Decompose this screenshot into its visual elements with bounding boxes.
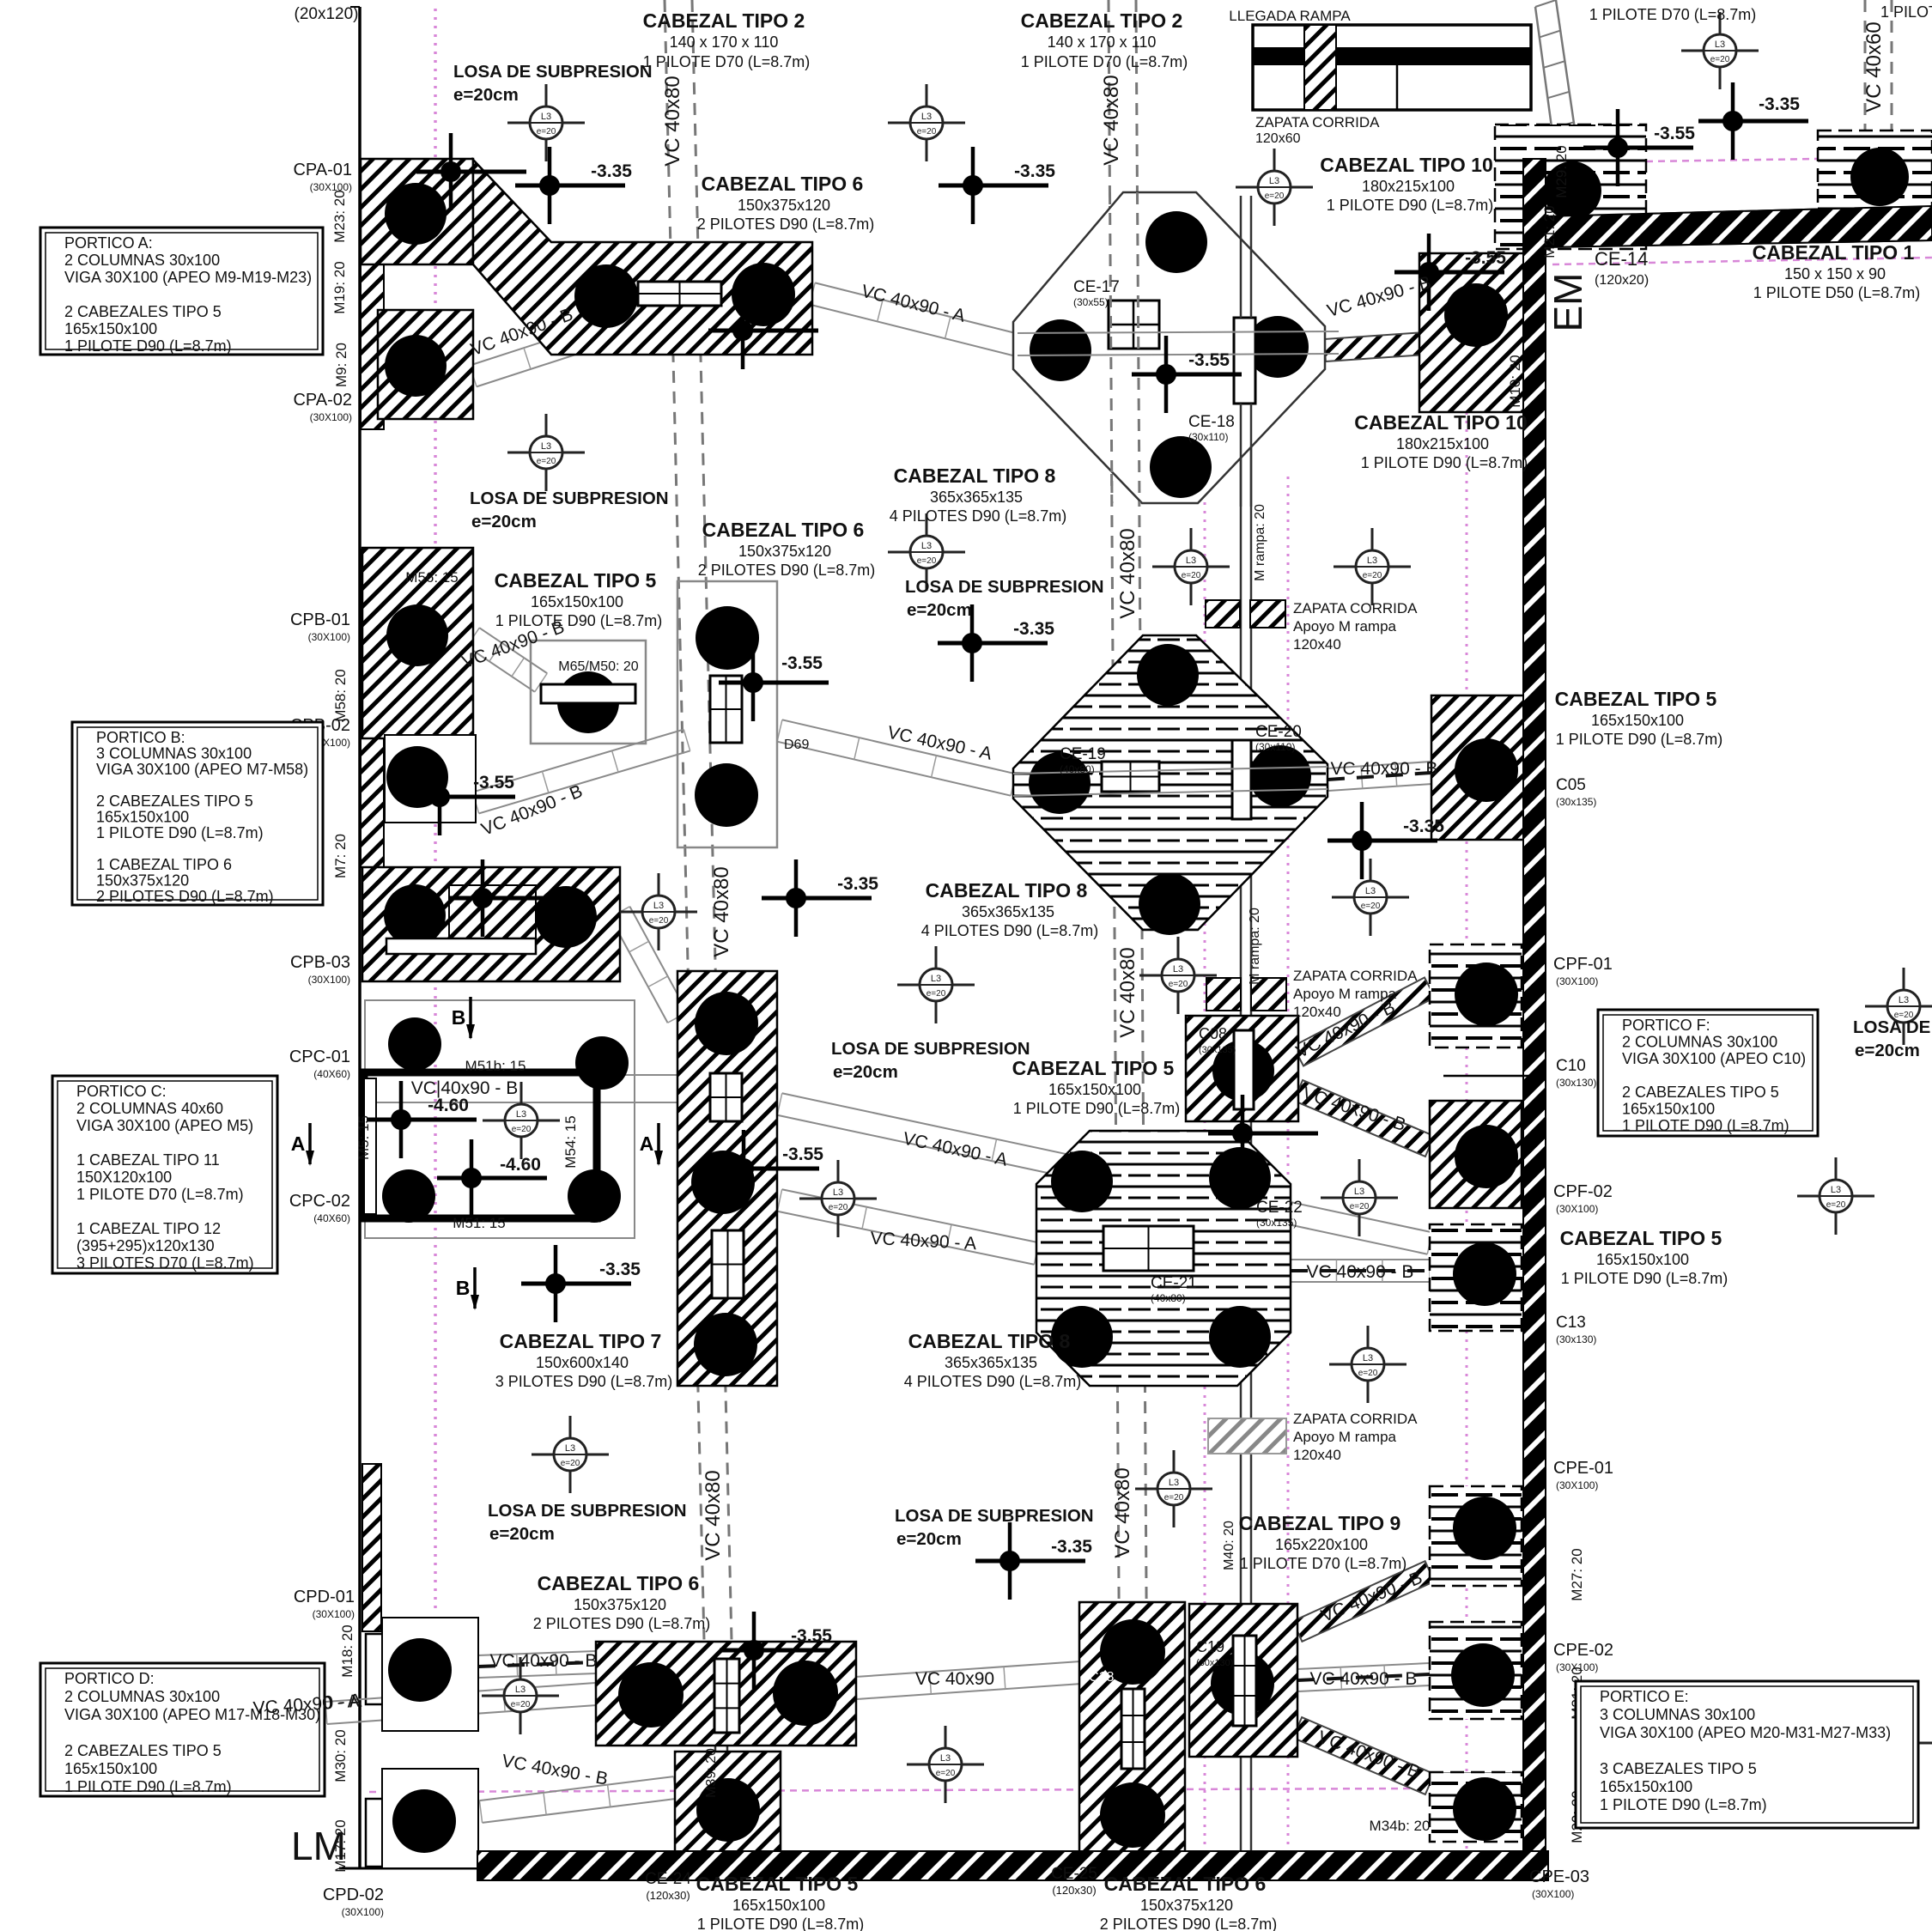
svg-text:L3: L3 bbox=[1269, 176, 1279, 186]
svg-text:VC 40x90 - B: VC 40x90 - B bbox=[490, 1651, 598, 1671]
svg-text:1 PILOTE D90 (L=8.7m): 1 PILOTE D90 (L=8.7m) bbox=[1600, 1796, 1767, 1813]
svg-text:(30x130): (30x130) bbox=[1196, 1658, 1233, 1668]
svg-text:C05: C05 bbox=[1556, 776, 1586, 794]
svg-text:(30X100): (30X100) bbox=[1556, 1479, 1598, 1491]
svg-text:(120x30): (120x30) bbox=[646, 1889, 690, 1902]
svg-text:140 x 170 x 110: 140 x 170 x 110 bbox=[670, 33, 779, 51]
svg-text:ZAPATA CORRIDA: ZAPATA CORRIDA bbox=[1293, 1411, 1418, 1427]
svg-text:L3: L3 bbox=[565, 1443, 575, 1454]
svg-text:e=20: e=20 bbox=[917, 556, 937, 566]
svg-text:1 PILOTE D90 (L=8.7m): 1 PILOTE D90 (L=8.7m) bbox=[1013, 1100, 1181, 1117]
svg-text:165x150x100: 165x150x100 bbox=[64, 1760, 157, 1777]
svg-text:(30x110): (30x110) bbox=[1255, 741, 1295, 753]
svg-text:1 CABEZAL TIPO 11: 1 CABEZAL TIPO 11 bbox=[76, 1151, 220, 1169]
svg-text:e=20: e=20 bbox=[829, 1203, 848, 1212]
svg-text:ZAPATA CORRIDA: ZAPATA CORRIDA bbox=[1293, 600, 1418, 616]
svg-text:Apoyo M rampa: Apoyo M rampa bbox=[1293, 618, 1397, 635]
svg-text:L3: L3 bbox=[1354, 1187, 1364, 1197]
svg-text:2 CABEZALES TIPO 5: 2 CABEZALES TIPO 5 bbox=[64, 303, 222, 320]
svg-text:2 COLUMNAS 30x100: 2 COLUMNAS 30x100 bbox=[64, 1688, 220, 1705]
svg-text:2 COLUMNAS 40x60: 2 COLUMNAS 40x60 bbox=[76, 1100, 223, 1117]
svg-text:C13: C13 bbox=[1556, 1314, 1586, 1332]
svg-text:B: B bbox=[456, 1277, 471, 1299]
svg-text:M30: 20: M30: 20 bbox=[332, 1729, 349, 1782]
svg-text:CPB-01: CPB-01 bbox=[290, 610, 350, 629]
svg-text:(30X100): (30X100) bbox=[1532, 1888, 1574, 1900]
svg-text:2 COLUMNAS 30x100: 2 COLUMNAS 30x100 bbox=[1622, 1034, 1777, 1051]
svg-text:CE-25: CE-25 bbox=[1051, 1865, 1097, 1883]
svg-text:CE-18: CE-18 bbox=[1188, 413, 1235, 431]
svg-text:CE-17: CE-17 bbox=[1073, 278, 1120, 296]
svg-text:150x375x120: 150x375x120 bbox=[96, 872, 189, 890]
svg-text:e=20cm: e=20cm bbox=[896, 1529, 962, 1549]
svg-text:1 PILOTE D90 (L=8.7m): 1 PILOTE D90 (L=8.7m) bbox=[697, 1916, 865, 1931]
svg-text:CE-24: CE-24 bbox=[645, 1870, 691, 1888]
svg-text:VC 40x60: VC 40x60 bbox=[1862, 21, 1886, 112]
svg-text:CPD-02: CPD-02 bbox=[323, 1885, 384, 1904]
svg-text:1 PILOTE D70 (L=8.7m): 1 PILOTE D70 (L=8.7m) bbox=[76, 1186, 244, 1203]
svg-text:-3.35: -3.35 bbox=[599, 1260, 641, 1279]
svg-text:1 PILOTE D70 (L=8.7m): 1 PILOTE D70 (L=8.7m) bbox=[1021, 53, 1188, 70]
svg-text:365x365x135: 365x365x135 bbox=[945, 1354, 1037, 1371]
svg-text:M40: 20: M40: 20 bbox=[1222, 1521, 1236, 1570]
svg-text:CABEZAL TIPO 5: CABEZAL TIPO 5 bbox=[1555, 688, 1717, 710]
svg-text:(30x135): (30x135) bbox=[1556, 796, 1596, 808]
svg-text:CPC-01: CPC-01 bbox=[289, 1047, 350, 1066]
svg-text:e=20cm: e=20cm bbox=[489, 1524, 555, 1544]
svg-text:1 CABEZAL TIPO 12: 1 CABEZAL TIPO 12 bbox=[76, 1220, 221, 1237]
svg-text:150 x 150 x 90: 150 x 150 x 90 bbox=[1784, 265, 1886, 282]
svg-text:CABEZAL TIPO 5: CABEZAL TIPO 5 bbox=[1560, 1227, 1722, 1249]
svg-text:140 x 170 x 110: 140 x 170 x 110 bbox=[1048, 33, 1157, 51]
svg-text:e=20: e=20 bbox=[1265, 191, 1285, 201]
svg-text:A: A bbox=[291, 1132, 306, 1155]
svg-text:(120x20): (120x20) bbox=[1595, 273, 1649, 288]
svg-text:CPF-01: CPF-01 bbox=[1553, 955, 1613, 974]
svg-text:L3: L3 bbox=[1715, 39, 1725, 50]
svg-text:e=20cm: e=20cm bbox=[453, 85, 519, 105]
svg-text:e=20: e=20 bbox=[537, 457, 556, 466]
svg-text:M18: 20: M18: 20 bbox=[339, 1624, 355, 1677]
svg-text:PORTICO C:: PORTICO C: bbox=[76, 1083, 167, 1100]
svg-text:ZAPATA CORRIDA: ZAPATA CORRIDA bbox=[1255, 114, 1380, 131]
svg-text:180x215x100: 180x215x100 bbox=[1362, 178, 1455, 195]
svg-text:1 PILOTE D70 (L=8.7m): 1 PILOTE D70 (L=8.7m) bbox=[1880, 3, 1932, 21]
svg-text:e=20: e=20 bbox=[1350, 1202, 1370, 1211]
svg-text:1 PILOTE D90 (L=8.7m): 1 PILOTE D90 (L=8.7m) bbox=[1327, 197, 1494, 214]
svg-text:L3: L3 bbox=[541, 441, 551, 452]
svg-text:M54: 15: M54: 15 bbox=[562, 1115, 579, 1168]
svg-text:-3.35: -3.35 bbox=[591, 161, 632, 181]
svg-text:L3: L3 bbox=[1367, 556, 1377, 566]
svg-text:L3: L3 bbox=[921, 541, 932, 551]
svg-text:e=20: e=20 bbox=[927, 989, 946, 999]
svg-text:3 PILOTES D70 (L=8.7m): 3 PILOTES D70 (L=8.7m) bbox=[76, 1254, 254, 1272]
svg-text:(30X100): (30X100) bbox=[308, 974, 350, 986]
svg-text:M21: 20: M21: 20 bbox=[1541, 205, 1558, 258]
svg-text:-3.55: -3.55 bbox=[791, 1626, 832, 1646]
svg-text:LOSA DE SUBPRESION: LOSA DE SUBPRESION bbox=[488, 1501, 687, 1521]
svg-text:3 CABEZALES TIPO 5: 3 CABEZALES TIPO 5 bbox=[1600, 1760, 1757, 1777]
svg-text:365x365x135: 365x365x135 bbox=[930, 489, 1023, 506]
svg-text:(30x110): (30x110) bbox=[1188, 431, 1228, 443]
svg-text:2 CABEZALES TIPO 5: 2 CABEZALES TIPO 5 bbox=[64, 1742, 222, 1759]
svg-text:CABEZAL TIPO 8: CABEZAL TIPO 8 bbox=[894, 465, 1056, 487]
svg-text:e=20: e=20 bbox=[649, 916, 669, 926]
svg-text:e=20: e=20 bbox=[511, 1700, 531, 1709]
svg-text:M65/M50: 20: M65/M50: 20 bbox=[558, 659, 638, 674]
svg-text:VIGA 30X100 (APEO M9-M19-M23): VIGA 30X100 (APEO M9-M19-M23) bbox=[64, 269, 312, 286]
svg-text:CABEZAL TIPO 5: CABEZAL TIPO 5 bbox=[1012, 1057, 1175, 1079]
svg-text:VC 40x90 - B: VC 40x90 - B bbox=[1310, 1669, 1418, 1689]
svg-text:PORTICO F:: PORTICO F: bbox=[1622, 1017, 1710, 1034]
svg-text:1 PILOTE D90 (L=8.7m): 1 PILOTE D90 (L=8.7m) bbox=[64, 1778, 232, 1795]
svg-text:L3: L3 bbox=[1186, 556, 1196, 566]
svg-text:L3: L3 bbox=[515, 1685, 526, 1695]
svg-text:-3.35: -3.35 bbox=[1014, 161, 1055, 181]
svg-text:1 PILOTE D90 (L=8.7m): 1 PILOTE D90 (L=8.7m) bbox=[1622, 1117, 1789, 1134]
svg-text:EM: EM bbox=[1546, 273, 1590, 332]
svg-text:165x150x100: 165x150x100 bbox=[732, 1897, 825, 1914]
svg-text:120x40: 120x40 bbox=[1293, 636, 1341, 653]
svg-text:ZAPATA CORRIDA: ZAPATA CORRIDA bbox=[1293, 968, 1418, 984]
svg-text:M34b: 20: M34b: 20 bbox=[1370, 1818, 1431, 1834]
svg-text:CPE-02: CPE-02 bbox=[1553, 1641, 1613, 1660]
svg-text:CABEZAL TIPO 2: CABEZAL TIPO 2 bbox=[1021, 9, 1183, 32]
svg-text:M5: 15: M5: 15 bbox=[355, 1115, 372, 1160]
svg-text:(30x55): (30x55) bbox=[1073, 296, 1109, 308]
svg-text:e=20: e=20 bbox=[1358, 1369, 1378, 1378]
svg-text:Apoyo M rampa: Apoyo M rampa bbox=[1293, 1429, 1397, 1445]
svg-text:180x215x100: 180x215x100 bbox=[1396, 435, 1489, 452]
svg-text:CABEZAL TIPO 5: CABEZAL TIPO 5 bbox=[696, 1873, 859, 1895]
svg-text:e=20cm: e=20cm bbox=[471, 512, 537, 531]
svg-text:165x150x100: 165x150x100 bbox=[1596, 1251, 1689, 1268]
svg-text:e=20: e=20 bbox=[917, 127, 937, 137]
svg-text:120x40: 120x40 bbox=[1293, 1447, 1341, 1463]
svg-text:M19: 20: M19: 20 bbox=[331, 261, 348, 313]
svg-text:e=20: e=20 bbox=[1169, 980, 1188, 989]
svg-text:LOSA DE SUBPRESION: LOSA DE SUBPRESION bbox=[1853, 1017, 1932, 1037]
svg-text:CPE-01: CPE-01 bbox=[1553, 1459, 1613, 1478]
svg-text:4 PILOTES D90 (L=8.7m): 4 PILOTES D90 (L=8.7m) bbox=[904, 1373, 1082, 1390]
svg-text:e=20: e=20 bbox=[537, 127, 556, 137]
svg-text:M17: 20: M17: 20 bbox=[332, 1819, 349, 1872]
svg-text:(40x80): (40x80) bbox=[1151, 1292, 1186, 1304]
svg-text:150x375x120: 150x375x120 bbox=[738, 197, 830, 214]
svg-text:(395+295)x120x130: (395+295)x120x130 bbox=[76, 1237, 215, 1254]
svg-text:1 CABEZAL TIPO 6: 1 CABEZAL TIPO 6 bbox=[96, 856, 232, 873]
svg-text:-3.35: -3.35 bbox=[1759, 94, 1800, 114]
svg-text:2 PILOTES D90 (L=8.7m): 2 PILOTES D90 (L=8.7m) bbox=[697, 216, 875, 233]
svg-text:2 PILOTES D90 (L=8.7m): 2 PILOTES D90 (L=8.7m) bbox=[96, 888, 274, 905]
svg-text:CPF-02: CPF-02 bbox=[1553, 1182, 1613, 1201]
svg-text:CE-20: CE-20 bbox=[1255, 723, 1302, 741]
svg-text:(30X100): (30X100) bbox=[310, 411, 352, 423]
svg-text:CABEZAL TIPO 5: CABEZAL TIPO 5 bbox=[495, 569, 657, 592]
svg-text:VC|40x90 - B: VC|40x90 - B bbox=[411, 1078, 519, 1098]
svg-text:2 CABEZALES TIPO 5: 2 CABEZALES TIPO 5 bbox=[96, 792, 253, 810]
svg-text:150x375x120: 150x375x120 bbox=[1140, 1897, 1233, 1914]
svg-text:L3: L3 bbox=[931, 974, 941, 984]
svg-text:CABEZAL TIPO 6: CABEZAL TIPO 6 bbox=[702, 173, 864, 195]
svg-text:165x150x100: 165x150x100 bbox=[96, 809, 189, 826]
svg-text:4 PILOTES D90 (L=8.7m): 4 PILOTES D90 (L=8.7m) bbox=[921, 922, 1099, 939]
svg-text:M39: 20: M39: 20 bbox=[704, 1748, 719, 1798]
svg-text:1 PILOTE D90 (L=8.7m): 1 PILOTE D90 (L=8.7m) bbox=[495, 612, 663, 629]
svg-text:L3: L3 bbox=[940, 1753, 951, 1764]
svg-text:e=20: e=20 bbox=[1710, 55, 1730, 64]
svg-text:-4.60: -4.60 bbox=[500, 1155, 541, 1175]
svg-text:165x220x100: 165x220x100 bbox=[1275, 1536, 1368, 1553]
svg-text:120x40: 120x40 bbox=[1293, 1004, 1341, 1020]
svg-text:CE-21: CE-21 bbox=[1151, 1274, 1197, 1292]
svg-text:LLEGADA RAMPA: LLEGADA RAMPA bbox=[1229, 8, 1351, 24]
svg-text:L3: L3 bbox=[541, 112, 551, 122]
svg-text:e=20: e=20 bbox=[1361, 902, 1381, 911]
svg-text:(30X100): (30X100) bbox=[313, 1608, 355, 1620]
svg-text:VC 40x90: VC 40x90 bbox=[915, 1669, 994, 1689]
svg-text:CE-19: CE-19 bbox=[1060, 745, 1106, 763]
svg-text:120x60: 120x60 bbox=[1255, 131, 1301, 146]
svg-text:1 PILOTE D90 (L=8.7m): 1 PILOTE D90 (L=8.7m) bbox=[1561, 1270, 1728, 1287]
svg-text:e=20cm: e=20cm bbox=[1855, 1041, 1920, 1060]
svg-text:C19: C19 bbox=[1196, 1638, 1224, 1655]
svg-text:LOSA DE SUBPRESION: LOSA DE SUBPRESION bbox=[905, 577, 1104, 597]
svg-text:-3.55: -3.55 bbox=[473, 773, 514, 792]
svg-text:(30x130): (30x130) bbox=[1556, 1077, 1596, 1089]
svg-text:CABEZAL TIPO 8: CABEZAL TIPO 8 bbox=[908, 1330, 1071, 1352]
svg-text:CPA-02: CPA-02 bbox=[293, 391, 352, 410]
svg-text:e=20: e=20 bbox=[1164, 1493, 1184, 1503]
svg-text:L3: L3 bbox=[1169, 1478, 1179, 1488]
svg-text:M10: 20: M10: 20 bbox=[1507, 355, 1523, 407]
svg-text:M23: 20: M23: 20 bbox=[331, 190, 348, 242]
svg-text:L3: L3 bbox=[516, 1109, 526, 1120]
svg-text:CABEZAL TIPO 1: CABEZAL TIPO 1 bbox=[1753, 241, 1915, 264]
svg-text:M27: 20: M27: 20 bbox=[1569, 1548, 1585, 1600]
svg-text:3 COLUMNAS 30x100: 3 COLUMNAS 30x100 bbox=[96, 745, 252, 762]
svg-text:1 PILOTE D90 (L=8.7m): 1 PILOTE D90 (L=8.7m) bbox=[1361, 454, 1528, 471]
svg-text:165x150x100: 165x150x100 bbox=[1591, 712, 1684, 729]
svg-text:PORTICO A:: PORTICO A: bbox=[64, 234, 153, 252]
svg-text:e=20: e=20 bbox=[512, 1125, 532, 1134]
svg-text:M rampa: 20: M rampa: 20 bbox=[1253, 504, 1267, 581]
svg-text:VC 40x80: VC 40x80 bbox=[1111, 1467, 1134, 1558]
svg-text:165x150x100: 165x150x100 bbox=[1600, 1778, 1692, 1795]
svg-text:CE-14: CE-14 bbox=[1595, 248, 1648, 270]
svg-text:PORTICO B:: PORTICO B: bbox=[96, 729, 185, 746]
svg-text:L3: L3 bbox=[921, 112, 932, 122]
svg-text:3 COLUMNAS 30x100: 3 COLUMNAS 30x100 bbox=[1600, 1706, 1755, 1723]
svg-text:L3: L3 bbox=[1831, 1185, 1841, 1195]
svg-text:(30X100): (30X100) bbox=[1556, 975, 1598, 987]
svg-text:1 PILOTE D90 (L=8.7m): 1 PILOTE D90 (L=8.7m) bbox=[96, 824, 264, 841]
svg-text:VC 40x80: VC 40x80 bbox=[1116, 528, 1139, 618]
svg-text:CABEZAL TIPO 6: CABEZAL TIPO 6 bbox=[538, 1572, 700, 1594]
svg-text:D69: D69 bbox=[784, 738, 809, 752]
svg-text:L3: L3 bbox=[1365, 886, 1376, 896]
svg-text:150x375x120: 150x375x120 bbox=[738, 543, 831, 560]
svg-text:VC 40x90 - B: VC 40x90 - B bbox=[1331, 759, 1438, 779]
svg-text:-3.55: -3.55 bbox=[782, 1145, 823, 1164]
svg-text:M7: 20: M7: 20 bbox=[332, 834, 349, 878]
svg-text:165x150x100: 165x150x100 bbox=[1622, 1101, 1715, 1118]
svg-text:CE-22: CE-22 bbox=[1256, 1199, 1303, 1217]
svg-text:(30X100): (30X100) bbox=[342, 1906, 384, 1918]
svg-text:CABEZAL TIPO 10: CABEZAL TIPO 10 bbox=[1354, 411, 1528, 434]
svg-text:B: B bbox=[452, 1006, 466, 1029]
svg-text:LOSA DE SUBPRESION: LOSA DE SUBPRESION bbox=[470, 489, 669, 508]
svg-text:-4.60: -4.60 bbox=[428, 1096, 469, 1115]
svg-text:165x150x100: 165x150x100 bbox=[1048, 1081, 1141, 1098]
svg-text:150x600x140: 150x600x140 bbox=[536, 1354, 629, 1371]
svg-text:-3.55: -3.55 bbox=[781, 653, 823, 673]
svg-text:M51b: 15: M51b: 15 bbox=[465, 1058, 526, 1074]
svg-text:VIGA 30X100 (APEO M7-M58): VIGA 30X100 (APEO M7-M58) bbox=[96, 761, 308, 778]
svg-text:CABEZAL TIPO 6: CABEZAL TIPO 6 bbox=[702, 519, 865, 541]
svg-text:VIGA 30X100 (APEO M5): VIGA 30X100 (APEO M5) bbox=[76, 1117, 253, 1134]
svg-text:2 PILOTES D90 (L=8.7m): 2 PILOTES D90 (L=8.7m) bbox=[533, 1615, 711, 1632]
svg-text:CPC-02: CPC-02 bbox=[289, 1192, 350, 1211]
svg-text:CABEZAL TIPO 9: CABEZAL TIPO 9 bbox=[1239, 1512, 1401, 1534]
svg-text:1 PILOTE D70 (L=8.7m): 1 PILOTE D70 (L=8.7m) bbox=[643, 53, 811, 70]
svg-text:e=20: e=20 bbox=[1182, 571, 1201, 580]
svg-text:VC 40x80: VC 40x80 bbox=[702, 1470, 725, 1560]
svg-text:4 PILOTES D90 (L=8.7m): 4 PILOTES D90 (L=8.7m) bbox=[890, 507, 1067, 525]
svg-text:365x365x135: 365x365x135 bbox=[962, 903, 1054, 920]
svg-text:PORTICO E:: PORTICO E: bbox=[1600, 1688, 1689, 1705]
svg-text:2 COLUMNAS 30x100: 2 COLUMNAS 30x100 bbox=[64, 252, 220, 269]
svg-text:150X120x100: 150X120x100 bbox=[76, 1169, 172, 1186]
svg-text:CABEZAL TIPO 6: CABEZAL TIPO 6 bbox=[1104, 1873, 1267, 1895]
svg-text:(40x80): (40x80) bbox=[1060, 763, 1095, 775]
svg-text:e=20cm: e=20cm bbox=[833, 1062, 898, 1082]
svg-text:(20x120): (20x120) bbox=[295, 5, 359, 23]
svg-text:-3.35: -3.35 bbox=[837, 874, 878, 894]
svg-text:C10: C10 bbox=[1556, 1057, 1586, 1075]
svg-text:1 PILOTE D70 (L=8.7m): 1 PILOTE D70 (L=8.7m) bbox=[1589, 6, 1757, 23]
svg-text:M rampa: 20: M rampa: 20 bbox=[1248, 908, 1262, 985]
svg-text:-3.35: -3.35 bbox=[1013, 619, 1054, 639]
svg-text:165x150x100: 165x150x100 bbox=[531, 593, 623, 610]
svg-text:(30X100): (30X100) bbox=[308, 631, 350, 643]
svg-text:1 PILOTE D70 (L=8.7m): 1 PILOTE D70 (L=8.7m) bbox=[1240, 1555, 1407, 1572]
svg-text:CPE-03: CPE-03 bbox=[1529, 1867, 1589, 1886]
svg-text:165x150x100: 165x150x100 bbox=[64, 320, 157, 337]
svg-text:LOSA DE SUBPRESION: LOSA DE SUBPRESION bbox=[895, 1506, 1094, 1526]
svg-text:CABEZAL TIPO 8: CABEZAL TIPO 8 bbox=[926, 879, 1088, 902]
svg-text:VC 40x80: VC 40x80 bbox=[710, 866, 733, 956]
svg-text:e=20: e=20 bbox=[561, 1459, 580, 1468]
svg-text:L3: L3 bbox=[833, 1187, 843, 1198]
svg-text:-3.35: -3.35 bbox=[1051, 1537, 1092, 1557]
svg-text:CPB-03: CPB-03 bbox=[290, 953, 350, 972]
svg-text:-3.55: -3.55 bbox=[1465, 248, 1506, 268]
svg-text:(40X60): (40X60) bbox=[313, 1212, 350, 1224]
svg-text:CPA-01: CPA-01 bbox=[293, 161, 352, 179]
svg-text:C08: C08 bbox=[1199, 1025, 1227, 1042]
svg-text:A: A bbox=[640, 1132, 654, 1155]
svg-text:C18: C18 bbox=[1089, 1670, 1114, 1685]
svg-text:M51: 15: M51: 15 bbox=[453, 1215, 505, 1231]
svg-text:CABEZAL TIPO 2: CABEZAL TIPO 2 bbox=[643, 9, 805, 32]
svg-text:CABEZAL TIPO 10: CABEZAL TIPO 10 bbox=[1320, 154, 1493, 176]
svg-text:2 PILOTES D90 (L=8.7m): 2 PILOTES D90 (L=8.7m) bbox=[1100, 1916, 1278, 1931]
svg-text:VC 40x80: VC 40x80 bbox=[1116, 947, 1139, 1037]
svg-text:150x375x120: 150x375x120 bbox=[574, 1596, 666, 1613]
svg-text:M9: 20: M9: 20 bbox=[333, 343, 349, 387]
svg-text:-3.55: -3.55 bbox=[1188, 350, 1230, 370]
svg-text:-3.35: -3.35 bbox=[1403, 817, 1444, 836]
svg-text:PORTICO D:: PORTICO D: bbox=[64, 1670, 155, 1687]
svg-text:(30x130): (30x130) bbox=[1556, 1333, 1596, 1345]
svg-text:CABEZAL TIPO 7: CABEZAL TIPO 7 bbox=[500, 1330, 662, 1352]
svg-text:(30x135): (30x135) bbox=[1256, 1217, 1297, 1229]
svg-text:VC 40x90 - B: VC 40x90 - B bbox=[1307, 1262, 1414, 1282]
svg-text:(30X100): (30X100) bbox=[1556, 1203, 1598, 1215]
svg-text:CPD-01: CPD-01 bbox=[294, 1588, 355, 1606]
svg-text:1 PILOTE D90 (L=8.7m): 1 PILOTE D90 (L=8.7m) bbox=[64, 337, 232, 355]
svg-text:3 PILOTES D90 (L=8.7m): 3 PILOTES D90 (L=8.7m) bbox=[495, 1373, 673, 1390]
svg-text:M29: 20: M29: 20 bbox=[1553, 145, 1570, 197]
svg-text:M58: 20: M58: 20 bbox=[332, 669, 349, 721]
svg-text:e=20: e=20 bbox=[1363, 571, 1382, 580]
svg-text:L3: L3 bbox=[1363, 1353, 1373, 1363]
svg-text:VIGA 30X100 (APEO C10): VIGA 30X100 (APEO C10) bbox=[1622, 1050, 1806, 1067]
svg-text:(120x30): (120x30) bbox=[1052, 1884, 1096, 1897]
svg-text:1 PILOTE D90 (L=8.7m): 1 PILOTE D90 (L=8.7m) bbox=[1556, 731, 1723, 748]
svg-text:L3: L3 bbox=[1173, 964, 1183, 975]
svg-text:e=20cm: e=20cm bbox=[907, 600, 972, 620]
svg-text:LOSA DE SUBPRESION: LOSA DE SUBPRESION bbox=[831, 1039, 1030, 1059]
svg-text:2 PILOTES D90 (L=8.7m): 2 PILOTES D90 (L=8.7m) bbox=[698, 562, 876, 579]
svg-text:M56: 15: M56: 15 bbox=[405, 569, 458, 586]
svg-text:-3.55: -3.55 bbox=[1654, 124, 1695, 143]
svg-text:2 CABEZALES TIPO 5: 2 CABEZALES TIPO 5 bbox=[1622, 1084, 1779, 1101]
svg-text:e=20: e=20 bbox=[936, 1769, 956, 1778]
svg-text:1 PILOTE D50 (L=8.7m): 1 PILOTE D50 (L=8.7m) bbox=[1753, 284, 1921, 301]
svg-text:(40X60): (40X60) bbox=[313, 1068, 350, 1080]
svg-text:L3: L3 bbox=[1899, 995, 1909, 1005]
svg-text:(30x135): (30x135) bbox=[1199, 1045, 1236, 1055]
svg-text:VC 40x80: VC 40x80 bbox=[661, 76, 684, 166]
svg-text:e=20: e=20 bbox=[1826, 1200, 1846, 1210]
svg-text:LOSA DE SUBPRESION: LOSA DE SUBPRESION bbox=[453, 62, 653, 82]
svg-text:L3: L3 bbox=[653, 901, 664, 911]
svg-text:Apoyo M rampa: Apoyo M rampa bbox=[1293, 986, 1397, 1002]
svg-text:VIGA 30X100 (APEO M20-M31-M27-: VIGA 30X100 (APEO M20-M31-M27-M33) bbox=[1600, 1724, 1891, 1741]
svg-text:VC 40x80: VC 40x80 bbox=[1100, 75, 1123, 165]
